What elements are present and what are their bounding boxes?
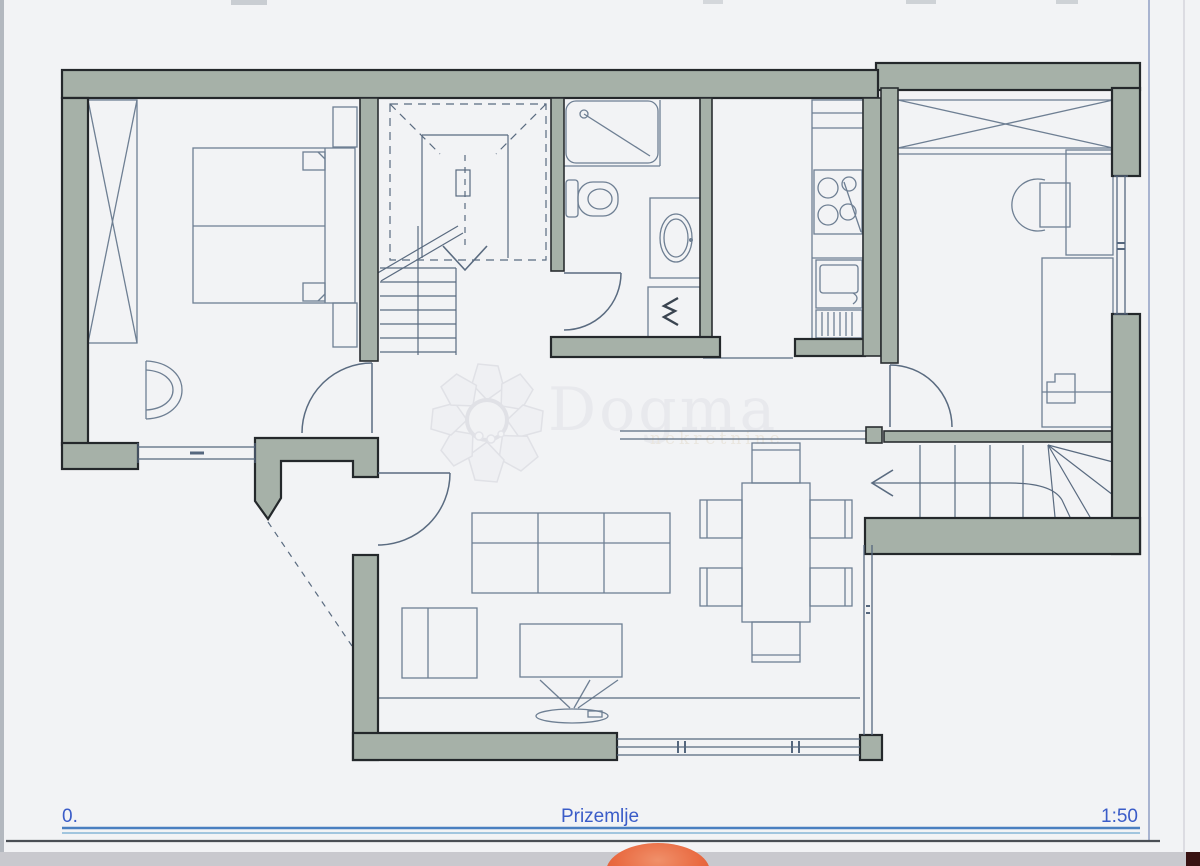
exterior-wall-right-upper [1112, 88, 1140, 176]
wall-right-room-bottom [884, 431, 1115, 442]
wall-living-left [353, 555, 378, 760]
wall-stairs-bottom [865, 518, 1140, 554]
scan-smudge [231, 0, 267, 5]
wall-bedroom-stair [360, 98, 378, 361]
wall-living-bottom [353, 733, 617, 760]
wall-kitchen-right [863, 98, 881, 356]
scan-smudge [906, 0, 936, 4]
scan-smudge [1056, 0, 1078, 4]
floorplan-drawing: Dogma nekretnine [0, 0, 1200, 866]
corner-mark [1186, 852, 1200, 866]
scanned-floorplan-sheet: Dogma nekretnine [0, 0, 1200, 866]
wall-bathroom-bottom [551, 337, 720, 357]
wall-door-jamb [866, 427, 882, 443]
wall-bedroom-bottom-left [62, 443, 138, 469]
wall-bathroom-right [700, 98, 712, 345]
scan-smudge [703, 0, 723, 4]
pillar [860, 735, 882, 760]
floor-name-label: Prizemlje [561, 806, 639, 827]
level-number: 0. [62, 806, 78, 827]
scanner-background-strip [0, 852, 1200, 866]
wall-kitchen-bottom [795, 339, 865, 356]
exterior-wall-top-right [876, 63, 1140, 90]
scan-left-edge-shadow [0, 0, 4, 866]
wall-right-room-left [881, 88, 898, 363]
wall-stair-bathroom [551, 98, 564, 271]
exterior-wall-top [62, 70, 878, 98]
exterior-wall-left [62, 98, 88, 445]
scale-label: 1:50 [1101, 806, 1138, 827]
